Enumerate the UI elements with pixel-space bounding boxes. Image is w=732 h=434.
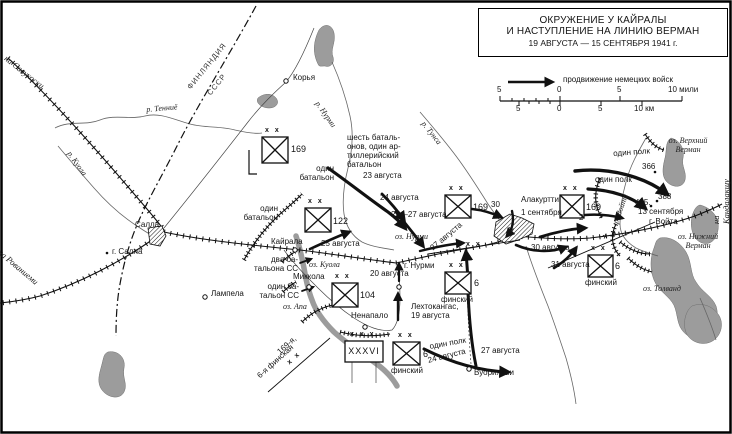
river-tennie xyxy=(55,115,262,133)
town-label-korya: Корья xyxy=(293,74,315,83)
lake-label-kuola: оз. Куола xyxy=(309,261,340,270)
unit-note-finnish-southwest: финский xyxy=(391,367,423,376)
unit-number-169-east: 169 xyxy=(586,202,601,212)
dot-g-salla xyxy=(106,252,109,255)
scale-km-0: 0 xyxy=(557,105,561,114)
hill-label-voyta: г. Войта xyxy=(649,218,678,227)
date-label-aug25-27: 25—27 августа xyxy=(391,211,447,220)
state-border xyxy=(116,6,256,336)
scale-miles-5l: 5 xyxy=(497,86,501,95)
unit-number-104: 104 xyxy=(360,290,375,300)
unit-box-6-center xyxy=(445,272,471,294)
scale-miles-0: 0 xyxy=(557,86,561,95)
unit-box-169-center xyxy=(445,195,471,218)
lake-small-nw xyxy=(257,94,277,108)
lake-label-verhniy-verman: оз. Верхний Верман xyxy=(662,137,714,155)
date-label-2: 2 xyxy=(579,214,583,223)
date-label-sep13: 13 сентября xyxy=(638,208,683,217)
unit-note-finnish-east: финский xyxy=(585,279,617,288)
town-label-salla: Салла xyxy=(135,221,159,230)
unit-size-122: х х xyxy=(308,198,324,206)
unit-box-169-west xyxy=(262,137,288,163)
date-label-30: 30 xyxy=(491,201,500,210)
unit-number-6-east: 6 xyxy=(615,261,620,271)
circle-vuoriyarvi xyxy=(467,367,471,371)
unit-size-corps-36: х х х xyxy=(350,331,376,339)
unit-box-122 xyxy=(305,208,331,232)
map-title-line3: 19 АВГУСТА — 15 СЕНТЯБРЯ 1941 г. xyxy=(479,38,727,48)
unit-number-corps-36: XXXVI xyxy=(345,346,383,356)
note-one-ss-battalion: один ба- тальон СС xyxy=(253,283,299,301)
date-label-aug24: 24 августа xyxy=(380,194,419,203)
hook-line-169w xyxy=(249,150,257,174)
date-label-aug27-south: 27 августа xyxy=(481,347,520,356)
scale-ticks-km xyxy=(519,101,642,106)
arrow-east-1 xyxy=(540,228,585,237)
date-label-sep1: 1 сентября xyxy=(521,209,562,218)
note-one-polk-east-lower: один полк xyxy=(595,176,632,185)
unit-number-169-west: 169 xyxy=(291,144,306,154)
unit-size-6-center: х х xyxy=(449,262,465,270)
circle-nenapalo xyxy=(363,325,367,329)
circle-lampela xyxy=(203,295,207,299)
date-label-aug23: 23 августа xyxy=(363,172,402,181)
lake-label-tolvand: оз. Толванд xyxy=(643,285,681,294)
boundary-xx-center: х х xyxy=(466,241,482,249)
edge-label-kandalaksha: на Кандалакшу xyxy=(712,179,731,224)
map-kairala-verman: ОКРУЖЕНИЕ У КАЙРАЛЫ И НАСТУПЛЕНИЕ НА ЛИН… xyxy=(0,0,732,434)
map-title-line2: И НАСТУПЛЕНИЕ НА ЛИНИЮ ВЕРМАН xyxy=(479,26,727,37)
town-label-mikkola: Миккола xyxy=(293,273,325,282)
circle-mikkola xyxy=(307,285,311,289)
unit-note-finnish-center: финский xyxy=(441,296,473,305)
unit-size-104: х х xyxy=(335,273,351,281)
town-label-nenapalo: Ненапало xyxy=(351,312,388,321)
unit-size-169-east: х х xyxy=(563,185,579,193)
note-six-battalions: шесть баталь- онов, один ар- тиллерийски… xyxy=(347,134,401,170)
lake-label-apa: оз. Апа xyxy=(283,303,307,312)
height-label-388: 388 xyxy=(658,193,671,202)
map-title-line1: ОКРУЖЕНИЕ У КАЙРАЛЫ xyxy=(479,15,727,26)
unit-box-104 xyxy=(332,283,358,307)
lake-top xyxy=(314,25,334,66)
unit-size-169-center: х х xyxy=(449,185,465,193)
scale-miles-10: 10 мили xyxy=(668,86,698,95)
town-label-lampela: Лампела xyxy=(211,290,244,299)
town-label-alakurtti: Алакуртти xyxy=(521,196,559,205)
arrow-aug27-north xyxy=(466,252,476,366)
scale-ticks-miles xyxy=(500,96,682,101)
lake-bottom-left xyxy=(99,352,126,397)
note-one-battalion-west: один батальон xyxy=(238,205,278,223)
height-label-366: 366 xyxy=(642,163,655,172)
legend-advance-label: продвижение немецких войск xyxy=(563,76,673,85)
legend-graphics xyxy=(500,82,682,106)
scale-miles-5r: 5 xyxy=(617,86,621,95)
note-two-ss-battalions: два ба- тальона СС xyxy=(252,256,298,274)
map-title-box: ОКРУЖЕНИЕ У КАЙРАЛЫ И НАСТУПЛЕНИЕ НА ЛИН… xyxy=(478,8,728,57)
unit-box-6-east xyxy=(588,255,613,277)
circle-lehtokangas xyxy=(397,285,401,289)
unit-number-122: 122 xyxy=(333,216,348,226)
town-label-vuoriyarvi: Вуориярви xyxy=(474,369,514,378)
note-one-battalion-north: один батальон xyxy=(294,165,334,183)
lake-label-nurmi: оз. Нурми xyxy=(395,233,428,242)
hill-label-salla: г. Салла xyxy=(112,248,143,257)
date-label-aug25: 25 августа xyxy=(321,240,360,249)
scale-km-5l: 5 xyxy=(516,105,520,114)
town-label-kayrala: Кайрала xyxy=(271,238,303,247)
scale-km-10: 10 км xyxy=(634,105,654,114)
circle-korya xyxy=(284,79,288,83)
unit-size-169-west: х х xyxy=(265,127,281,135)
unit-number-6-center: 6 xyxy=(474,278,479,288)
date-label-aug30: 30 августа xyxy=(531,244,570,253)
date-label-aug20: 20 августа xyxy=(370,270,409,279)
unit-number-169-center: 169 xyxy=(473,202,488,212)
unit-number-6-southwest: 6 xyxy=(423,349,428,359)
unit-box-6-southwest xyxy=(393,342,420,365)
unit-size-6-east: х х xyxy=(591,245,607,253)
scale-km-5r: 5 xyxy=(598,105,602,114)
circle-kayrala xyxy=(293,248,297,252)
unit-size-6-southwest: х х xyxy=(398,332,414,340)
label-lehtokangas: Лехтокангас, 19 августа xyxy=(411,303,458,321)
lake-label-nizhniy-verman: оз. Нижний Верман xyxy=(672,233,724,251)
date-label-aug31: 31 августа xyxy=(551,261,590,270)
